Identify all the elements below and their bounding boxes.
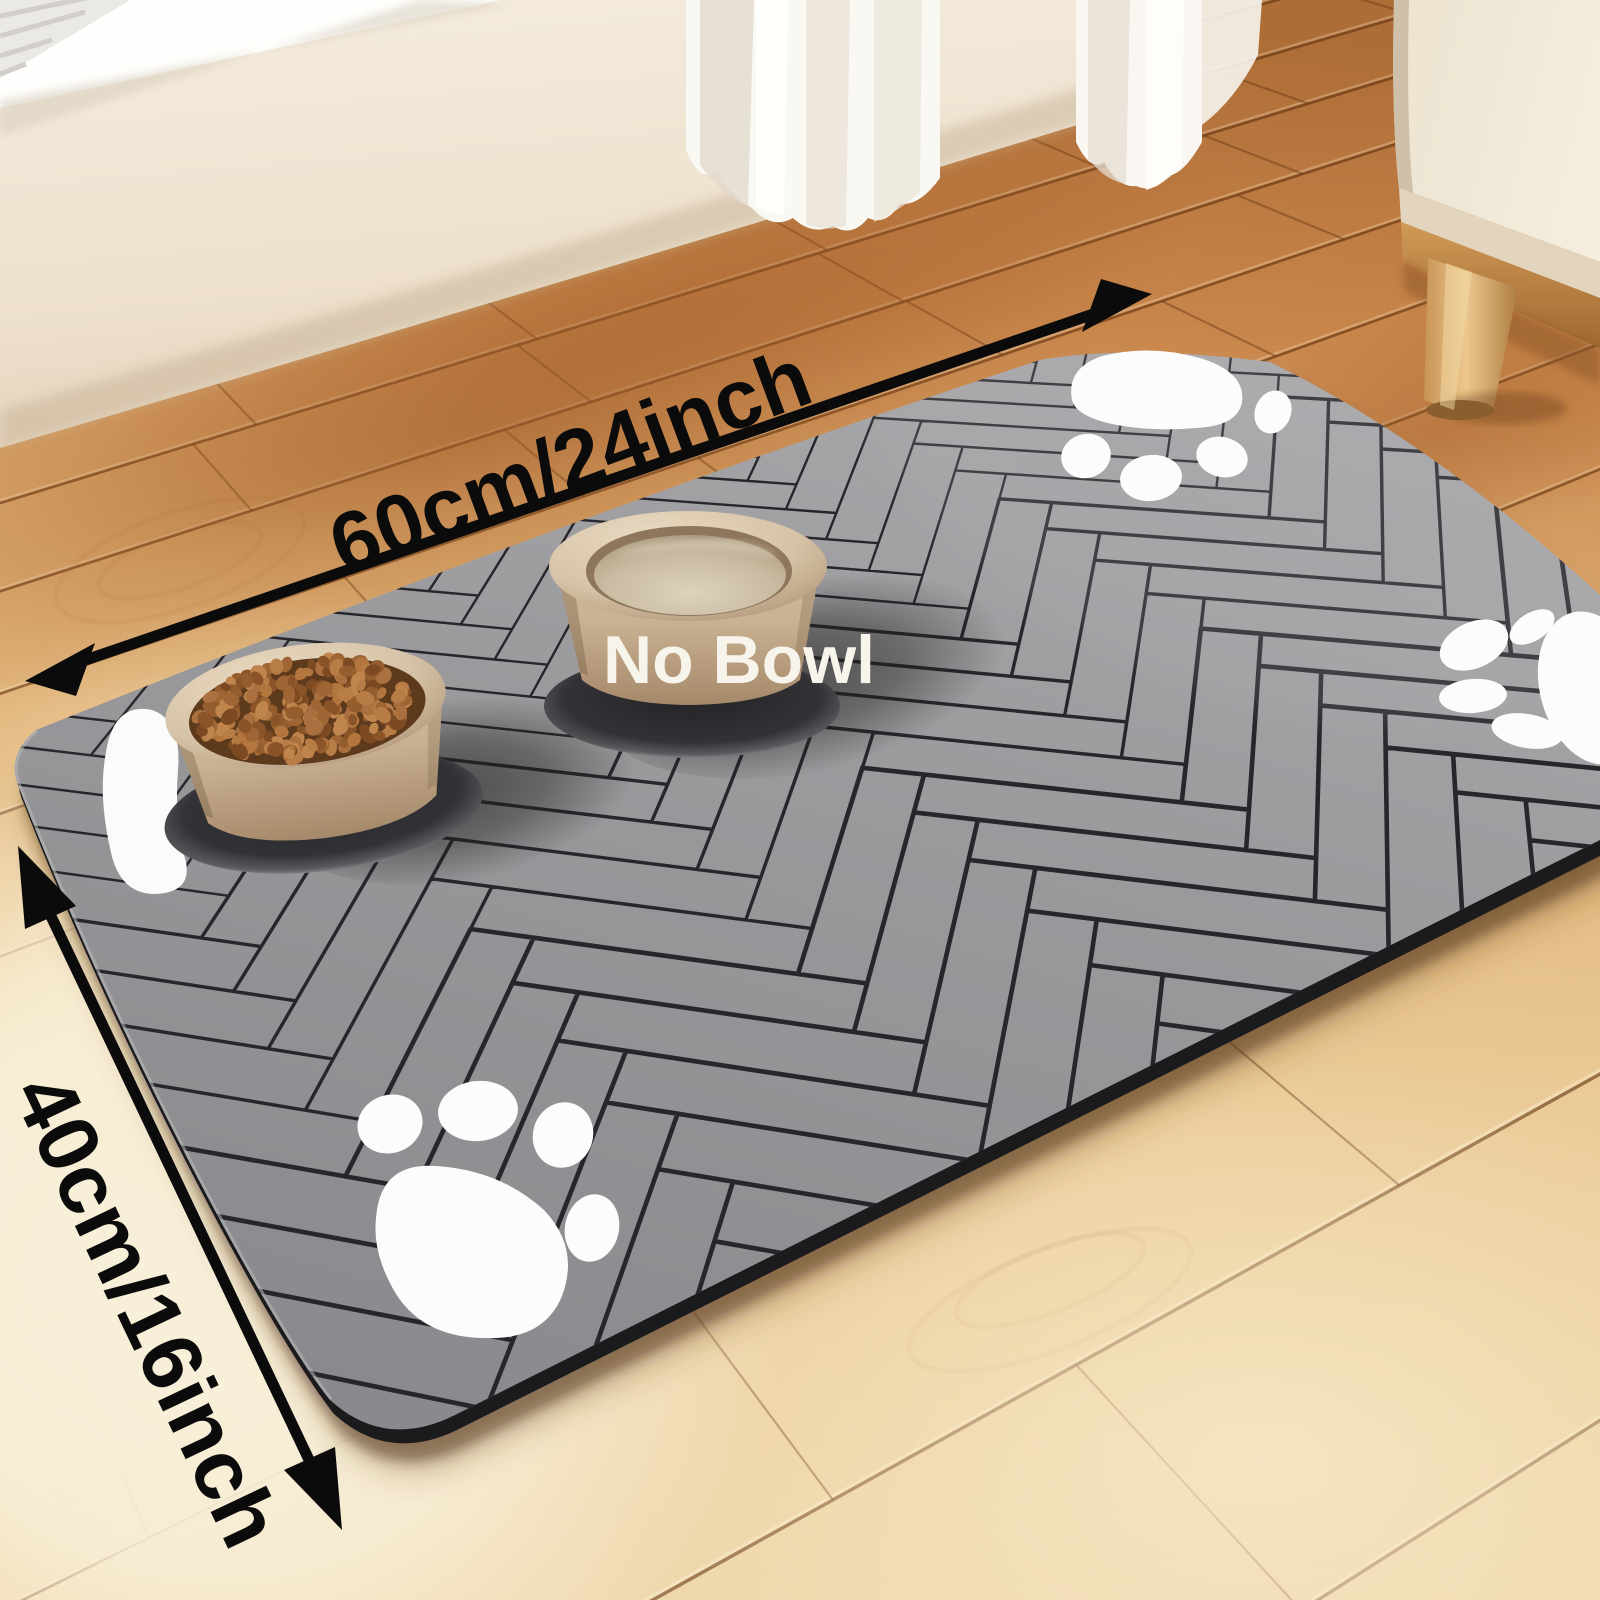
svg-text:No Bowl: No Bowl — [603, 622, 875, 698]
